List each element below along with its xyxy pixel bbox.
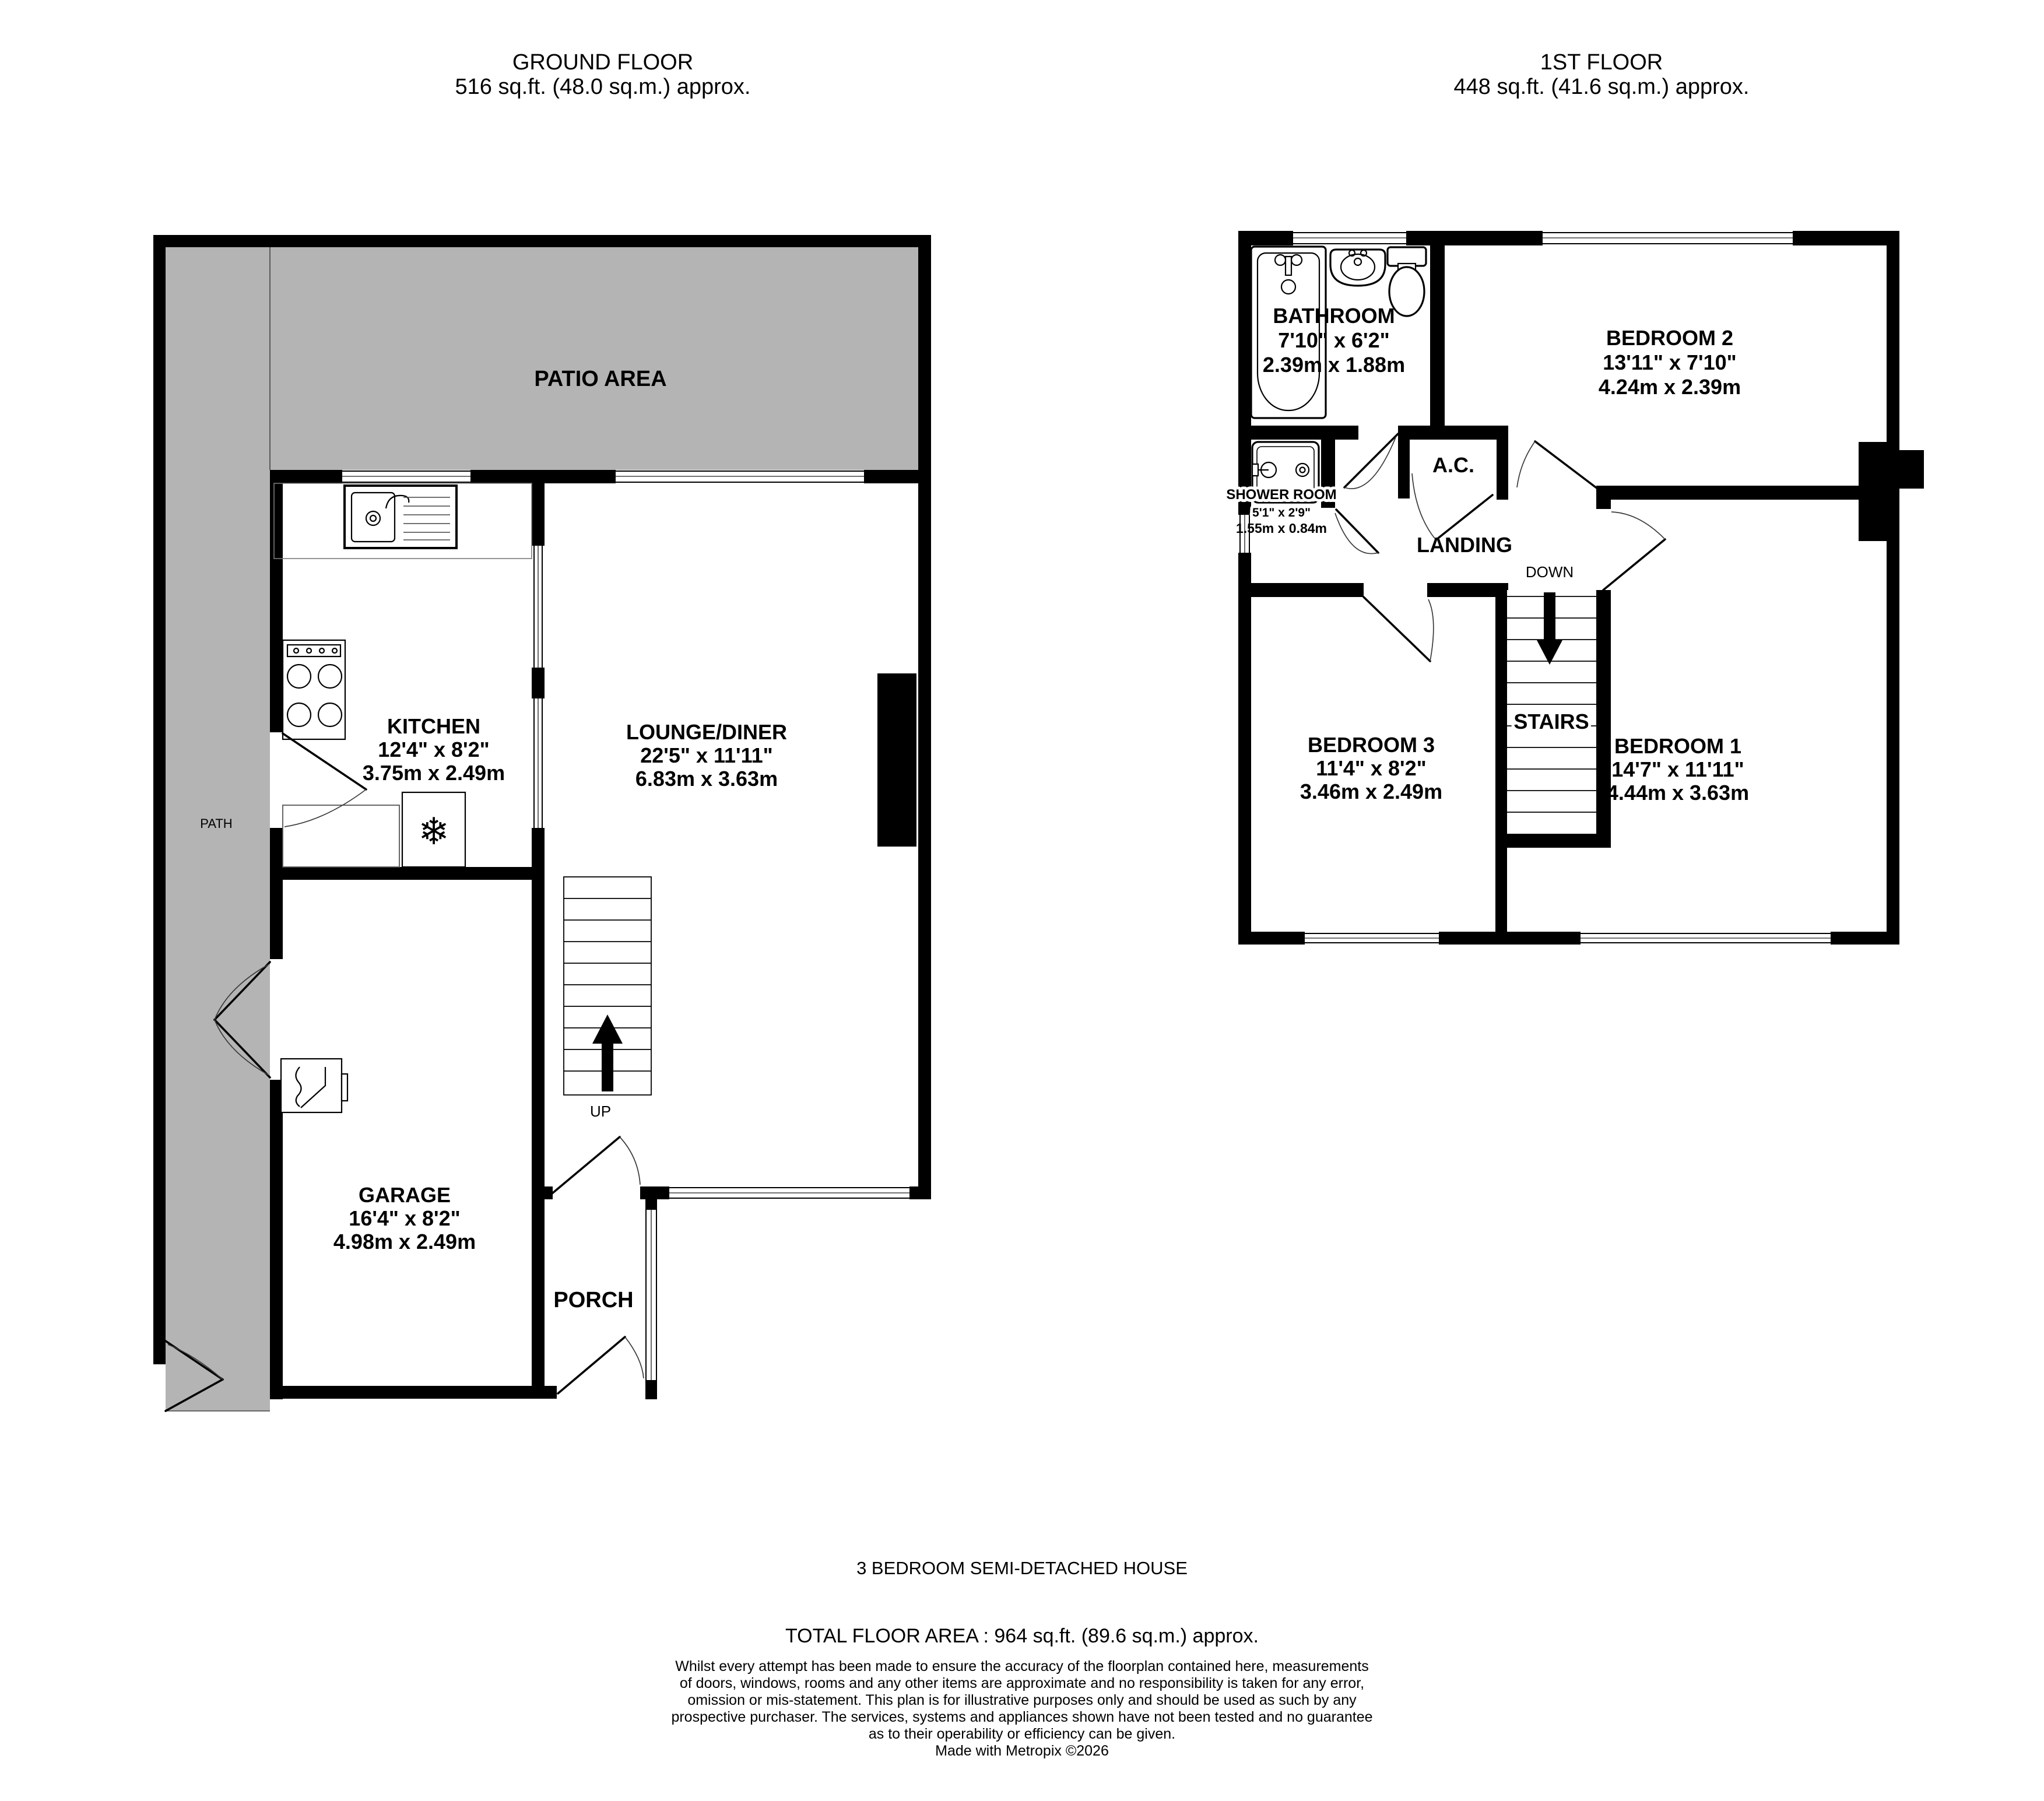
bedroom3-label: BEDROOM 3 11'4" x 8'2" 3.46m x 2.49m (1300, 733, 1442, 803)
room-name: KITCHEN (387, 714, 480, 738)
freezer: ❄ (402, 792, 465, 867)
disclaimer-line: of doors, windows, rooms and any other i… (680, 1675, 1364, 1691)
room-dims-metric: 6.83m x 3.63m (635, 767, 778, 791)
down-label: DOWN (1526, 563, 1574, 581)
lounge-rear-window (616, 470, 864, 483)
room-dims-metric: 4.44m x 3.63m (1607, 781, 1749, 805)
room-dims-imperial: 5'1" x 2'9" (1252, 506, 1311, 519)
wall-segment (640, 1186, 669, 1199)
bedroom2-label: BEDROOM 2 13'11" x 7'10" 4.24m x 2.39m (1599, 326, 1741, 399)
room-name: BEDROOM 2 (1606, 326, 1733, 350)
wall-segment (645, 1380, 657, 1399)
wall-segment (864, 470, 931, 483)
wall-segment (1398, 426, 1508, 440)
floorplan-canvas: GROUND FLOOR 516 sq.ft. (48.0 sq.m.) app… (0, 0, 2044, 1801)
kitchen-fixtures: ❄ (274, 483, 532, 1112)
wall-segment (1238, 426, 1358, 440)
stove-hob (283, 640, 345, 739)
room-name: BEDROOM 1 (1614, 734, 1741, 758)
room-dims-metric: 4.24m x 2.39m (1599, 375, 1741, 399)
disclaimer-line: omission or mis-statement. This plan is … (687, 1692, 1357, 1708)
wall-segment (918, 235, 931, 1199)
room-name: GARAGE (359, 1183, 451, 1207)
footer: 3 BEDROOM SEMI-DETACHED HOUSE TOTAL FLOO… (671, 1558, 1372, 1759)
room-dims-imperial: 14'7" x 11'11" (1611, 757, 1744, 781)
room-dims-imperial: 11'4" x 8'2" (1316, 756, 1426, 780)
wall-segment (1596, 486, 1611, 509)
bathroom-label: BATHROOM 7'10" x 6'2" 2.39m x 1.88m (1263, 304, 1405, 377)
ground-floor-header: GROUND FLOOR 516 sq.ft. (48.0 sq.m.) app… (455, 50, 751, 99)
bedroom1-label: BEDROOM 1 14'7" x 11'11" 4.44m x 3.63m (1607, 734, 1749, 805)
bedroom3-door (1364, 597, 1434, 661)
disclaimer-line: prospective purchaser. The services, sys… (671, 1709, 1372, 1725)
bedroom1-window (1581, 932, 1831, 945)
room-dims-imperial: 22'5" x 11'11" (640, 743, 772, 767)
room-dims-imperial: 13'11" x 7'10" (1603, 350, 1736, 374)
front-door (558, 1337, 644, 1393)
down-arrow-shaft (1544, 592, 1555, 643)
room-dims-metric: 3.46m x 2.49m (1300, 780, 1442, 803)
garage-heater (281, 1059, 347, 1112)
garage-label: GARAGE 16'4" x 8'2" 4.98m x 2.49m (333, 1183, 476, 1254)
ground-floor-title: GROUND FLOOR (512, 50, 693, 75)
patio-label: PATIO AREA (534, 367, 666, 391)
wall-segment (270, 867, 545, 880)
room-dims-metric: 3.75m x 2.49m (363, 761, 505, 785)
room-name: LOUNGE/DINER (626, 720, 787, 744)
wall-segment (1887, 231, 1899, 945)
kitchen-sink (345, 486, 456, 548)
wall-segment (270, 1386, 557, 1399)
ground-stairs: UP (564, 877, 651, 1120)
room-dims-metric: 2.39m x 1.88m (1263, 353, 1405, 377)
room-name: SHOWER ROOM (1226, 487, 1336, 503)
wall-segment (153, 235, 931, 247)
wall-segment (1495, 834, 1611, 848)
bedroom3-window (1305, 932, 1439, 945)
stairs-label: STAIRS (1513, 710, 1589, 733)
first-floor-header: 1ST FLOOR 448 sq.ft. (41.6 sq.m.) approx… (1454, 50, 1750, 99)
property-type: 3 BEDROOM SEMI-DETACHED HOUSE (856, 1558, 1188, 1578)
first-floor-title: 1ST FLOOR (1540, 50, 1663, 75)
room-dims-imperial: 12'4" x 8'2" (378, 738, 489, 761)
wall-segment (1398, 440, 1410, 498)
room-name: BATHROOM (1273, 304, 1395, 328)
up-arrow-shaft (602, 1041, 613, 1091)
wall-segment (270, 1080, 283, 1399)
ac-label: A.C. (1432, 453, 1474, 477)
path-label: PATH (200, 816, 232, 831)
first-floor-plan: DOWN STAIRS (1226, 231, 1924, 945)
wall-segment (1238, 583, 1364, 597)
room-name: BEDROOM 3 (1308, 733, 1435, 757)
chimney-breast (1859, 442, 1887, 541)
porch-label: PORCH (553, 1288, 633, 1312)
wall-segment (153, 235, 166, 1364)
wall-segment (270, 828, 283, 959)
room-dims-metric: 4.98m x 2.49m (333, 1230, 476, 1254)
wall-segment (532, 483, 545, 546)
chimney-breast (877, 673, 916, 847)
room-dims-imperial: 7'10" x 6'2" (1278, 328, 1389, 352)
wall-segment (1495, 590, 1507, 945)
kitchen-label: KITCHEN 12'4" x 8'2" 3.75m x 2.49m (363, 714, 505, 785)
first-stairs: DOWN STAIRS (1507, 563, 1596, 834)
chimney-stub (1899, 450, 1924, 489)
bathroom-sink (1330, 250, 1385, 286)
wall-segment (1430, 231, 1445, 440)
lounge-porch-door (552, 1137, 640, 1193)
patio-area (270, 247, 918, 470)
bedroom2-door (1517, 441, 1597, 489)
disclaimer-line: Whilst every attempt has been made to en… (675, 1658, 1369, 1674)
freezer-snowflake-icon: ❄ (418, 810, 449, 852)
credit-line: Made with Metropix ©2026 (935, 1743, 1109, 1759)
floorplan-page: GROUND FLOOR 516 sq.ft. (48.0 sq.m.) app… (0, 0, 2044, 1801)
lounge-front-window (669, 1188, 909, 1198)
up-label: UP (590, 1103, 611, 1120)
wall-segment (532, 668, 545, 698)
kitchen-worktop-unit (283, 805, 399, 867)
ac-cupboard-door (1412, 473, 1492, 540)
ground-floor-plan: ❄ UP (153, 235, 931, 1411)
porch-glazing (646, 1210, 656, 1380)
bedroom1-door (1603, 512, 1665, 590)
kitchen-window (342, 470, 470, 483)
room-dims-imperial: 16'4" x 8'2" (349, 1206, 460, 1230)
wall-segment (909, 1186, 931, 1199)
wall-segment (1611, 486, 1899, 500)
disclaimer-line: as to their operability or efficiency ca… (869, 1726, 1175, 1742)
bathroom-window (1293, 231, 1406, 245)
wall-segment (532, 828, 545, 1399)
ground-floor-area: 516 sq.ft. (48.0 sq.m.) approx. (455, 75, 751, 99)
wall-segment (470, 470, 616, 483)
total-floor-area: TOTAL FLOOR AREA : 964 sq.ft. (89.6 sq.m… (785, 1625, 1259, 1647)
shower-room-door (1335, 510, 1378, 554)
bathroom-door (1344, 434, 1398, 489)
wall-segment (270, 483, 283, 732)
wall-segment (645, 1199, 657, 1210)
room-dims-metric: 1.55m x 0.84m (1236, 521, 1327, 536)
wall-segment (1497, 440, 1508, 500)
wall-segment (1596, 590, 1611, 848)
first-floor-area: 448 sq.ft. (41.6 sq.m.) approx. (1454, 75, 1750, 99)
landing-label: LANDING (1417, 533, 1512, 557)
bedroom2-window (1543, 231, 1793, 245)
lounge-label: LOUNGE/DINER 22'5" x 11'11" 6.83m x 3.63… (626, 720, 787, 791)
wall-segment (270, 470, 342, 483)
